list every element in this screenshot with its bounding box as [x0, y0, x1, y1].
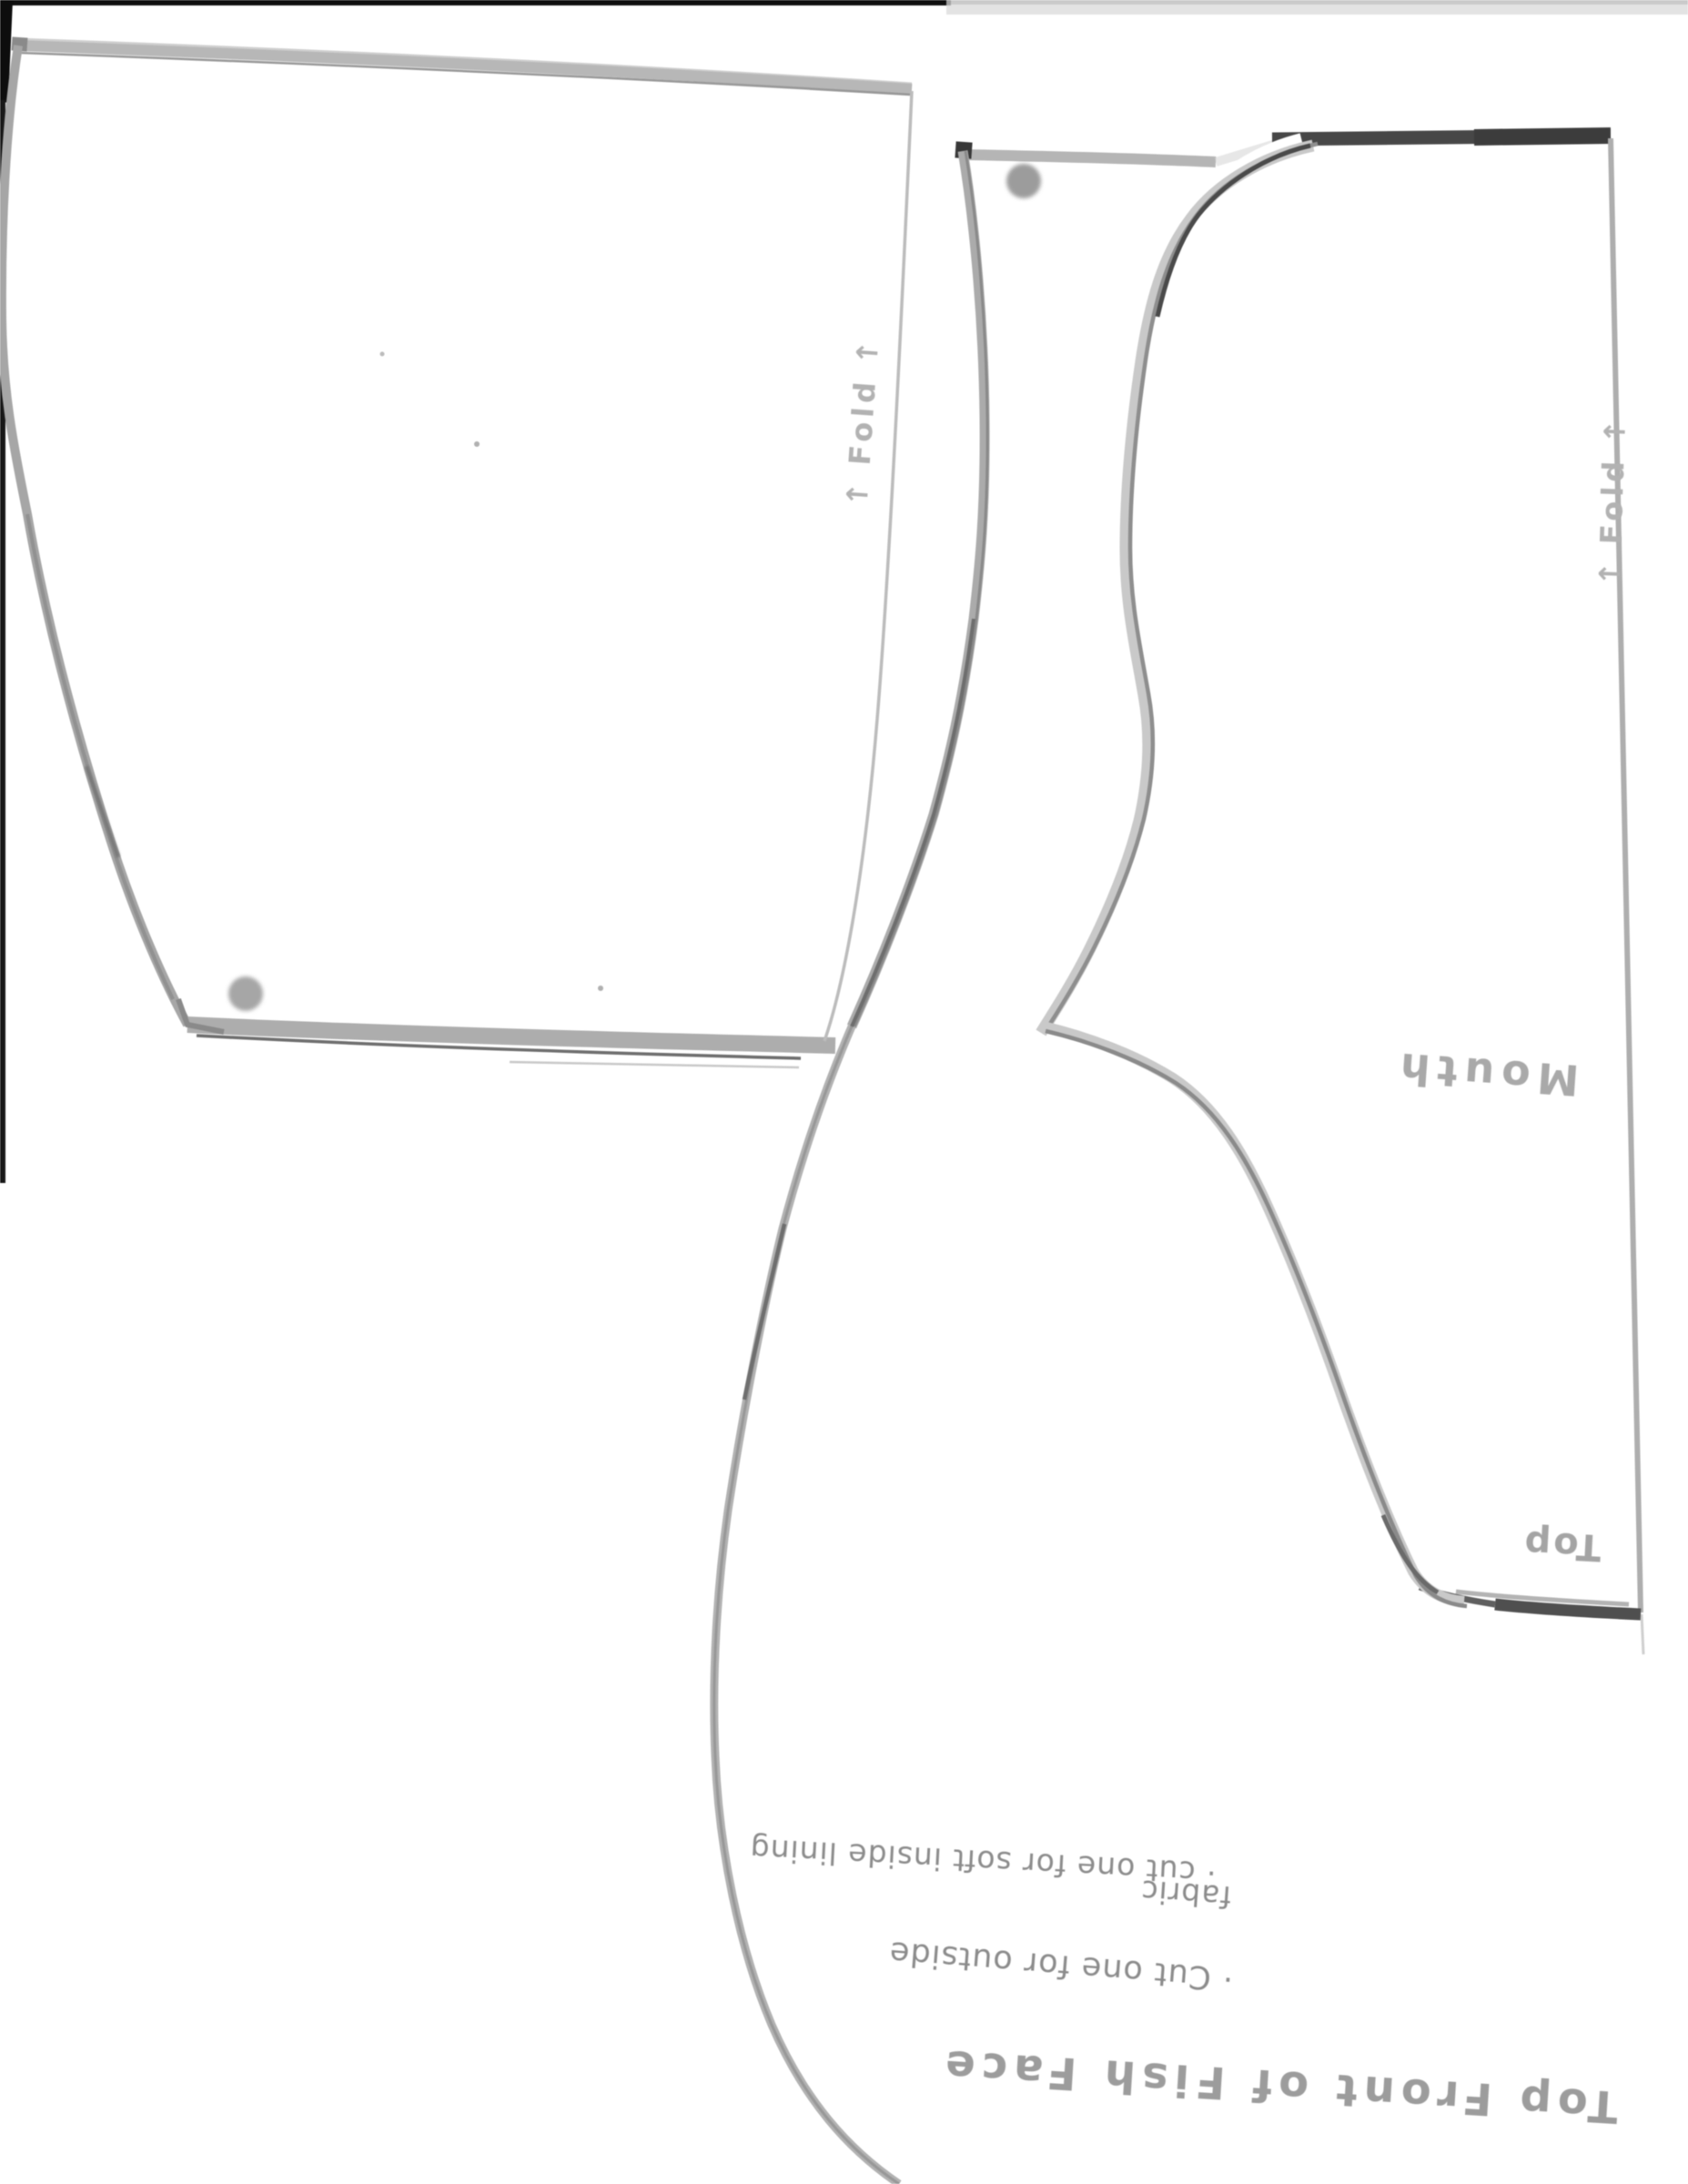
speck — [598, 986, 603, 991]
left-piece-bottom-edge — [187, 1025, 835, 1046]
fishface-mouth-curve-shadow — [1043, 1026, 1464, 1602]
pattern-piece-fishface-outline — [714, 144, 1467, 2184]
mouth-piece-top-edge-dark2 — [1474, 136, 1611, 137]
mouth-piece-right-edge — [1611, 138, 1641, 1613]
pattern-piece-mouth-outline — [799, 136, 1643, 1654]
left-piece-left-edge-dark — [27, 514, 173, 999]
speck — [474, 441, 480, 447]
left-piece-left-edge-dark-patch — [86, 766, 118, 857]
fishface-left-curve — [714, 1026, 899, 2184]
left-piece-dot — [228, 976, 263, 1011]
left-piece-top-edge — [18, 45, 912, 89]
scanned-pattern-page: ↑Fold↑ ↑Fold↑ Mouth Top · cut one for so… — [0, 0, 1688, 2184]
scan-edge-top-right — [946, 0, 1688, 5]
mouth-piece-left-edge — [852, 151, 985, 1026]
fishface-s-curve-shadow — [1041, 146, 1313, 1033]
fishface-mouth-curve — [1046, 1031, 1467, 1606]
pattern-piece-left-outline — [2, 36, 912, 1067]
scan-edge-top — [0, 0, 951, 5]
mouth-piece-left-edge-line — [854, 151, 987, 1026]
fishface-left-curve-dark — [744, 1224, 784, 1400]
scan-specks — [380, 352, 604, 992]
fishface-left-curve-line — [714, 1026, 899, 2184]
mouth-piece-top-edge-light — [968, 155, 1216, 162]
pattern-drawing — [0, 0, 1688, 2184]
mouth-piece-dot — [1006, 164, 1041, 198]
speck — [380, 352, 385, 357]
left-piece-right-edge — [824, 91, 912, 1041]
mouth-piece-right-edge-tail — [1642, 1614, 1643, 1654]
left-piece-bottom-edge-echo — [510, 1062, 799, 1067]
fishface-s-curve — [1046, 144, 1318, 1031]
